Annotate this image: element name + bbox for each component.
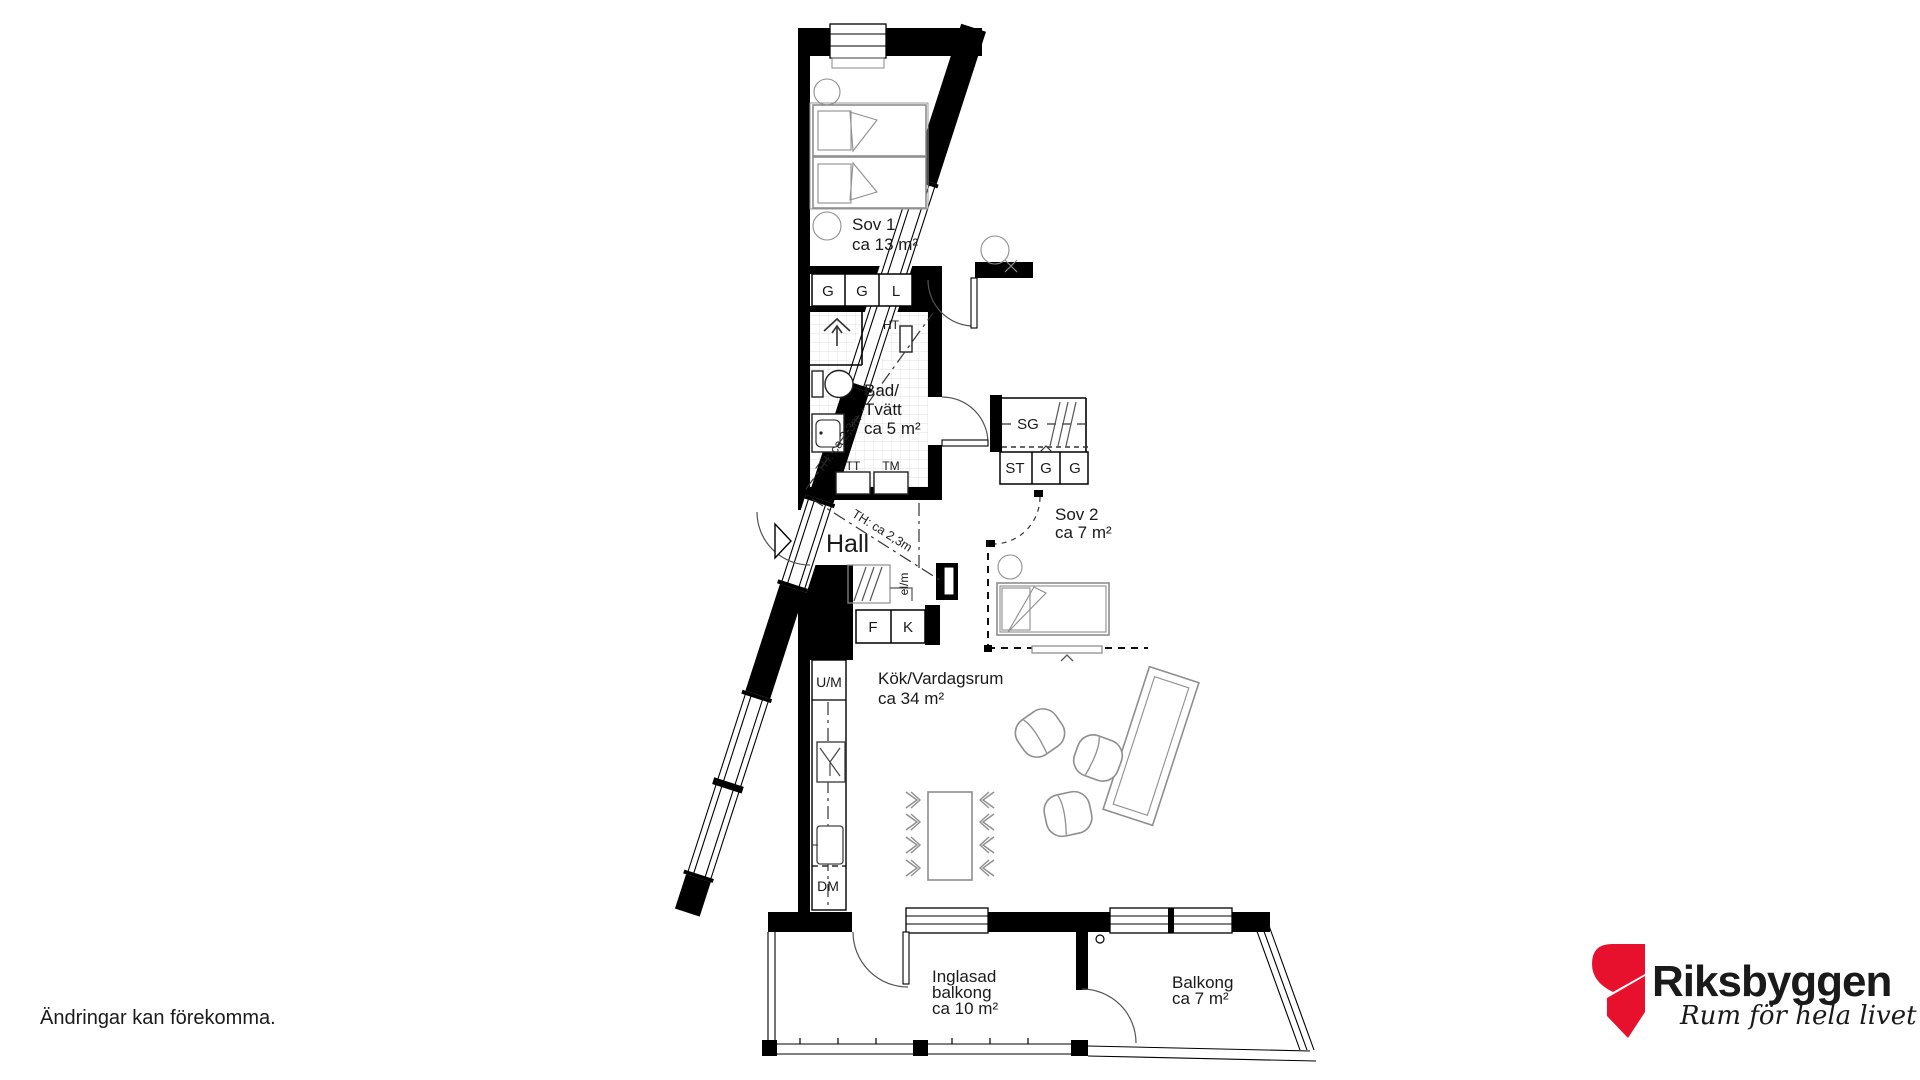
freezer-label: F <box>868 619 877 636</box>
oven-micro-label: U/M <box>816 674 842 690</box>
bath-label-2: Tvätt <box>864 400 902 419</box>
wardrobe1-label: G <box>822 283 834 300</box>
el-meter-cabinet <box>944 567 954 595</box>
el-meter-label: el/m <box>897 573 911 596</box>
fridge-label: K <box>903 619 913 636</box>
bottom-window-1 <box>906 908 988 933</box>
disclaimer-text: Ändringar kan förekomma. <box>40 1007 276 1029</box>
kitchen-counter <box>812 660 846 910</box>
hall-label: Hall <box>826 530 869 558</box>
wardrobe3-label: G <box>1040 460 1052 477</box>
kitchen-label: Kök/Vardagsrum <box>878 669 1003 688</box>
glazed-balcony-area: ca 10 m² <box>932 999 998 1018</box>
sov1-label: Sov 1 <box>852 215 895 234</box>
kitchen-sink <box>812 826 843 864</box>
towel-dryer-label: HT <box>883 318 900 332</box>
wardrobe2-label: G <box>856 283 868 300</box>
sov1-area: ca 13 m² <box>852 235 918 254</box>
sov2-area: ca 7 m² <box>1055 523 1112 542</box>
bottom-window-2 <box>1110 908 1232 933</box>
sov2-label: Sov 2 <box>1055 505 1098 524</box>
floorplan-canvas: Sov 1 ca 13 m² Bad/ Tvätt ca 5 m² Hall S… <box>0 0 1920 1080</box>
balcony-area: ca 7 m² <box>1172 989 1229 1008</box>
fridge-freezer <box>856 610 925 643</box>
washer-label: TM <box>882 459 899 473</box>
sliding-wardrobe-label: SG <box>1017 416 1039 433</box>
bath-area: ca 5 m² <box>864 419 921 438</box>
linen-label: L <box>892 283 900 300</box>
towel-dryer <box>900 326 912 352</box>
dryer-label: TT <box>846 459 861 473</box>
stove <box>817 742 845 782</box>
toilet <box>812 371 853 398</box>
riksbyggen-wordmark: Riksbyggen <box>1652 957 1891 1006</box>
kitchen-area: ca 34 m² <box>878 689 944 708</box>
wardrobe4-label: G <box>1069 460 1081 477</box>
bath-label-1: Bad/ <box>864 381 899 400</box>
cleaning-closet-label: ST <box>1005 460 1024 477</box>
riksbyggen-tagline: Rum för hela livet <box>1679 1001 1917 1031</box>
dishwasher-label: DM <box>817 878 839 894</box>
